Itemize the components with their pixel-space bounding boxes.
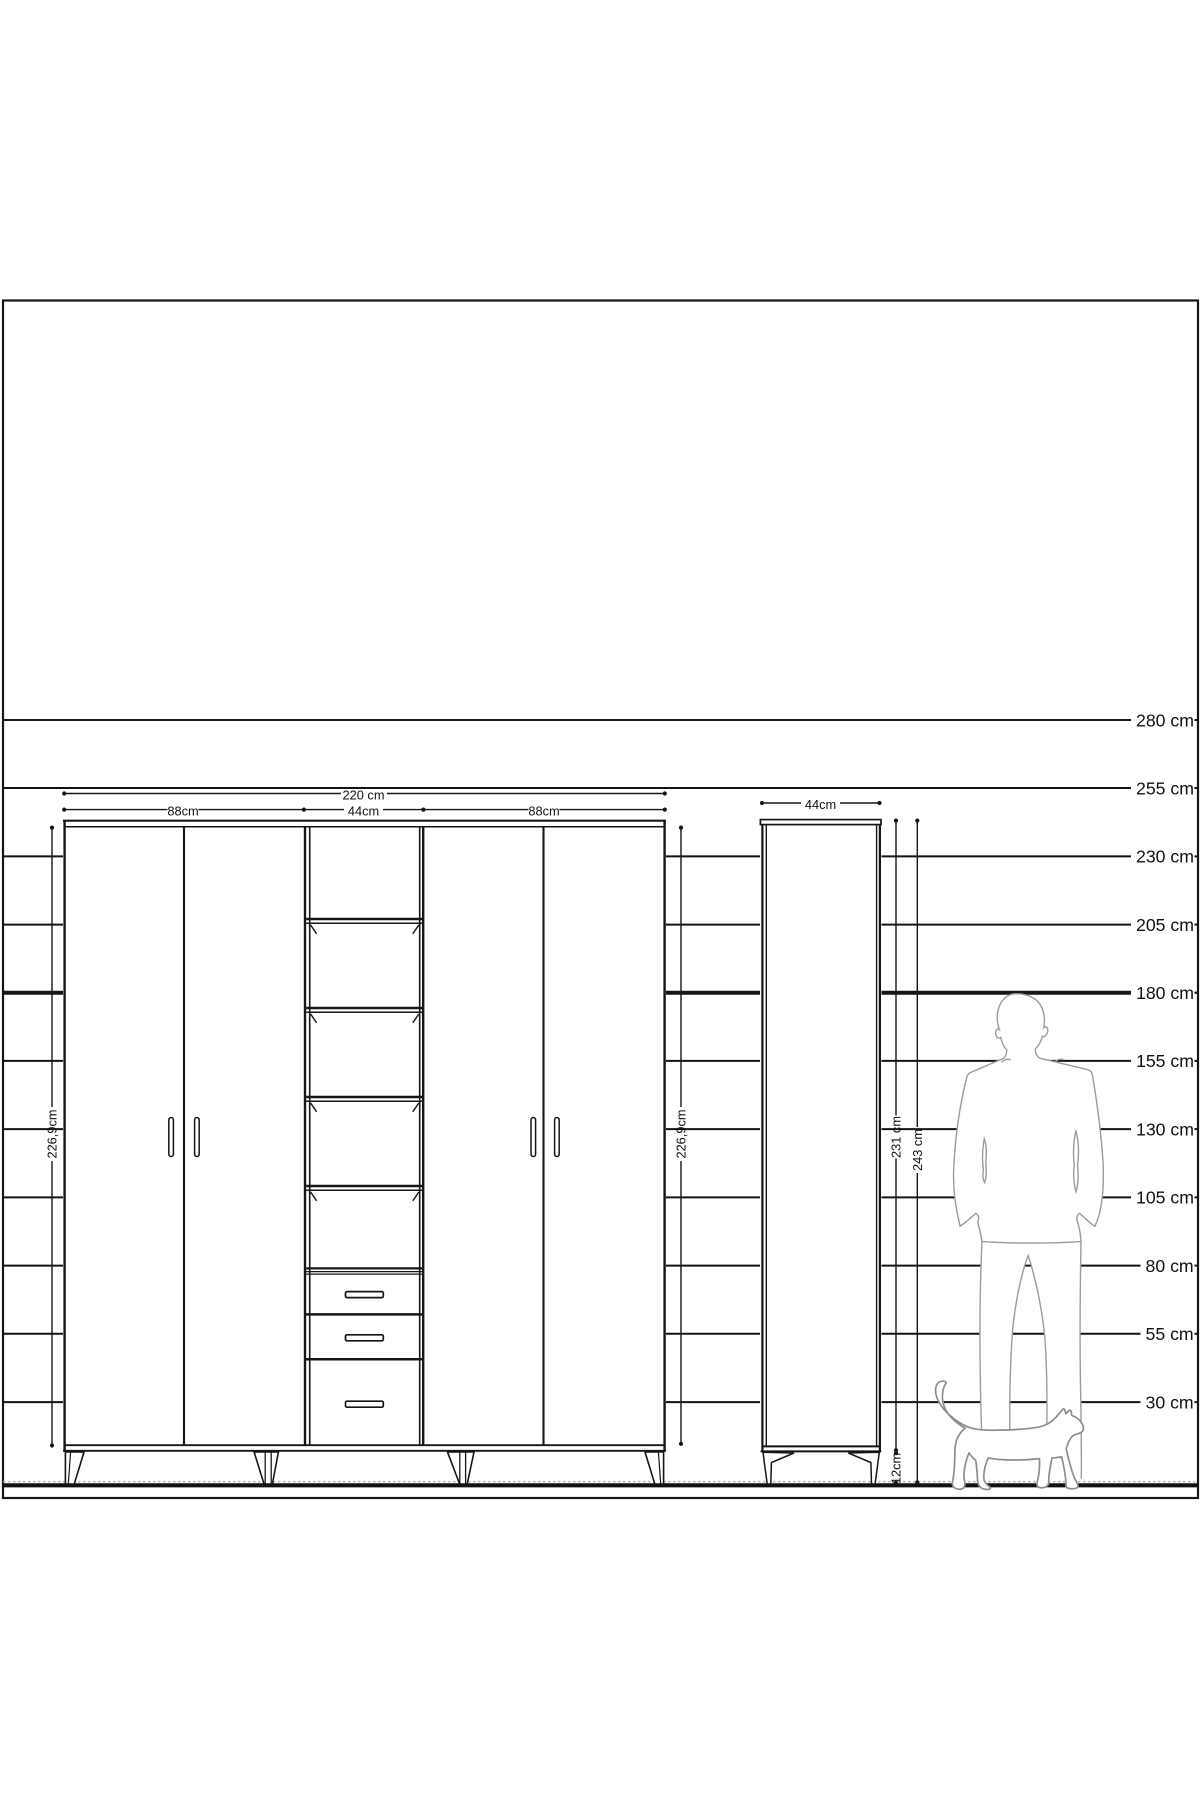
svg-text:130 cm: 130 cm (1136, 1119, 1194, 1139)
svg-text:280 cm: 280 cm (1136, 710, 1194, 730)
svg-text:44cm: 44cm (805, 797, 836, 812)
svg-text:205 cm: 205 cm (1136, 915, 1194, 935)
svg-text:44cm: 44cm (348, 803, 379, 818)
svg-text:220 cm: 220 cm (343, 788, 385, 803)
svg-text:226,9cm: 226,9cm (674, 1109, 689, 1158)
svg-text:55 cm: 55 cm (1146, 1324, 1194, 1344)
svg-text:88cm: 88cm (528, 803, 559, 818)
svg-text:105 cm: 105 cm (1136, 1188, 1194, 1208)
svg-text:12cm: 12cm (889, 1453, 904, 1484)
svg-text:226,9cm: 226,9cm (45, 1109, 60, 1158)
svg-text:88cm: 88cm (167, 803, 198, 818)
svg-text:230 cm: 230 cm (1136, 847, 1194, 867)
svg-text:255 cm: 255 cm (1136, 778, 1194, 798)
svg-text:30 cm: 30 cm (1146, 1392, 1194, 1412)
svg-text:231 cm: 231 cm (889, 1116, 904, 1158)
svg-text:180 cm: 180 cm (1136, 983, 1194, 1003)
svg-text:243 cm: 243 cm (910, 1129, 925, 1171)
svg-text:80 cm: 80 cm (1146, 1256, 1194, 1276)
svg-text:155 cm: 155 cm (1136, 1051, 1194, 1071)
